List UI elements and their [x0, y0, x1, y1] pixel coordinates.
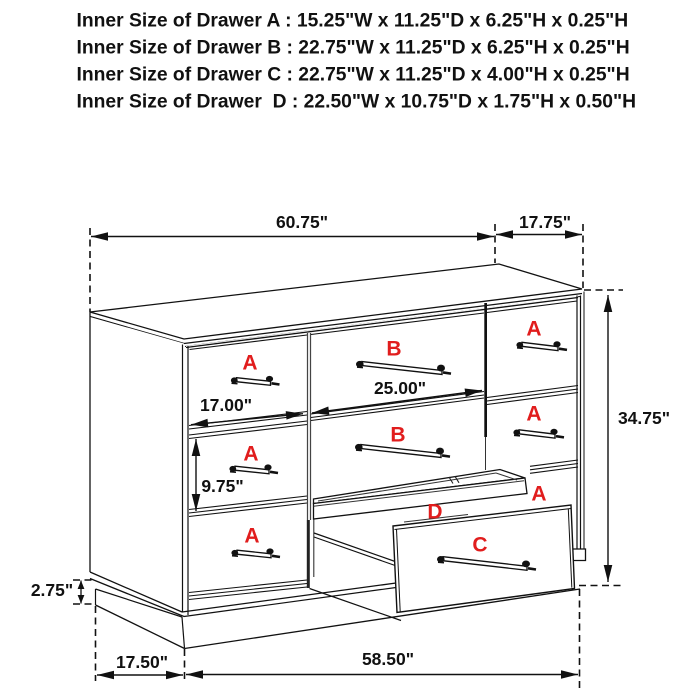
svg-text:17.75": 17.75" [519, 212, 571, 232]
svg-text:B: B [386, 338, 401, 361]
svg-text:A: A [531, 483, 546, 506]
svg-text:17.00": 17.00" [200, 395, 252, 415]
svg-text:A: A [243, 443, 258, 466]
svg-text:A: A [242, 352, 257, 375]
svg-text:C: C [472, 534, 487, 557]
svg-text:Inner Size of Drawer B : 22.75: Inner Size of Drawer B : 22.75"W x 11.25… [77, 38, 630, 59]
svg-text:A: A [526, 318, 541, 341]
svg-text:25.00": 25.00" [374, 378, 426, 398]
svg-text:17.50": 17.50" [116, 652, 168, 672]
svg-text:9.75": 9.75" [201, 476, 243, 496]
svg-text:Inner Size of Drawer A : 15.25: Inner Size of Drawer A : 15.25"W x 11.25… [77, 11, 629, 32]
svg-text:Inner Size of Drawer D : 22.5: Inner Size of Drawer D : 22.50"W x 10.75… [77, 92, 637, 113]
svg-text:34.75": 34.75" [618, 408, 670, 428]
svg-text:2.75": 2.75" [31, 580, 73, 600]
svg-text:B: B [390, 424, 405, 447]
svg-text:A: A [244, 525, 259, 548]
svg-text:A: A [526, 403, 541, 426]
svg-text:Inner Size of Drawer C : 22.75: Inner Size of Drawer C : 22.75"W x 11.25… [77, 65, 630, 86]
svg-text:58.50": 58.50" [362, 649, 414, 669]
svg-text:60.75": 60.75" [276, 212, 328, 232]
